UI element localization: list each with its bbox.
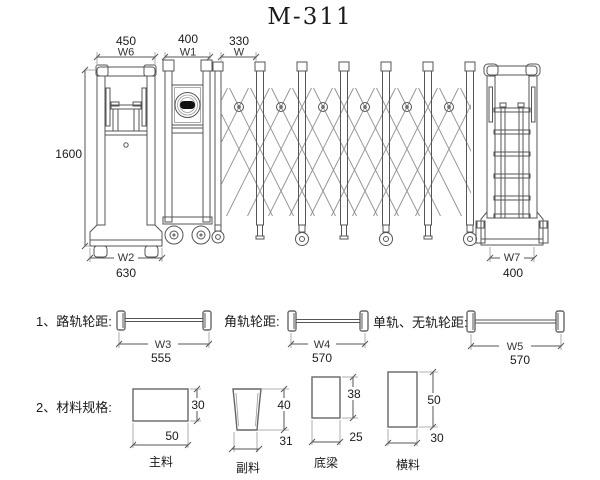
dim-570-value: 570: [312, 351, 332, 365]
dim-w4-label: W4: [314, 339, 331, 351]
secondary-label: 副料: [236, 461, 260, 475]
dim-400-value: 400: [178, 32, 198, 46]
dim-630-value: 630: [116, 266, 136, 280]
beam-width: 25: [349, 430, 363, 444]
secondary-width: 31: [279, 434, 293, 448]
head-wheel: [94, 246, 107, 257]
logo-plate: [172, 85, 203, 125]
dim-w1-label: W1: [180, 47, 197, 59]
beam-label: 底梁: [314, 455, 338, 470]
crossbar-label: 横料: [396, 458, 420, 472]
beam-height: 38: [347, 387, 361, 401]
dim-tail-width: W7 400: [487, 247, 537, 280]
dim-570b-value: 570: [510, 353, 530, 367]
head-frame: [90, 65, 162, 257]
lock-hole-icon: [124, 143, 128, 147]
track-spacing-rail: 1、路轨轮距: W3 555: [36, 311, 212, 365]
logo-badge: [180, 101, 195, 109]
dim-w3-label: W3: [155, 339, 172, 351]
dim-unit-width: 400 W1: [162, 32, 213, 60]
scissor-lattice: [164, 88, 525, 216]
tail-frame: [476, 64, 548, 245]
rail-spacing-heading: 1、路轨轮距:: [36, 314, 112, 329]
dim-1600-value: 1600: [55, 147, 82, 161]
secondary-height: 40: [277, 398, 291, 412]
dim-w5-label: W5: [507, 341, 524, 353]
track-spacing-corner: 角轨轮距: W4 570: [224, 311, 368, 365]
material-bottom-beam: 38 25 底梁: [309, 374, 363, 470]
head-wheel: [145, 246, 158, 257]
material-main: 30 50 主料: [130, 386, 205, 469]
mono-spacing-heading: 单轨、无轨轮距:: [373, 315, 468, 330]
gate-drawing-svg: M-311: [0, 0, 600, 480]
material-secondary: 40 31 副料: [229, 386, 293, 475]
dim-module-width: 330 W: [218, 34, 259, 62]
tail-ladder: [494, 103, 530, 218]
dim-w7-label: W7: [504, 252, 521, 264]
main-height: 30: [191, 398, 205, 412]
head-inner-bench: [111, 102, 141, 131]
drawing-title: M-311: [267, 4, 352, 30]
drive-wheels: [165, 226, 210, 244]
dim-head-width: 450 W6: [94, 34, 158, 66]
crossbar-width: 30: [430, 431, 444, 445]
main-label: 主料: [149, 455, 173, 469]
dim-w6-label: W6: [118, 47, 135, 59]
dim-w-label: W: [234, 47, 245, 59]
material-crossbar: 50 30 横料: [385, 369, 444, 472]
dim-head-base: W2 630: [87, 248, 165, 280]
scissor-posts: [255, 62, 477, 246]
main-width: 50: [165, 429, 179, 443]
dim-w2-label: W2: [118, 252, 135, 264]
technical-drawing-page: M-311: [0, 0, 600, 480]
crossbar-height: 50: [427, 393, 441, 407]
dim-height: 1600: [55, 67, 96, 249]
dim-555-value: 555: [151, 351, 171, 365]
corner-spacing-heading: 角轨轮距:: [224, 314, 280, 329]
drive-unit: [163, 60, 224, 244]
dim-400-tail-value: 400: [503, 266, 523, 280]
track-spacing-mono: 单轨、无轨轮距: W5 570: [373, 311, 564, 367]
materials-heading: 2、材料规格:: [36, 400, 112, 415]
